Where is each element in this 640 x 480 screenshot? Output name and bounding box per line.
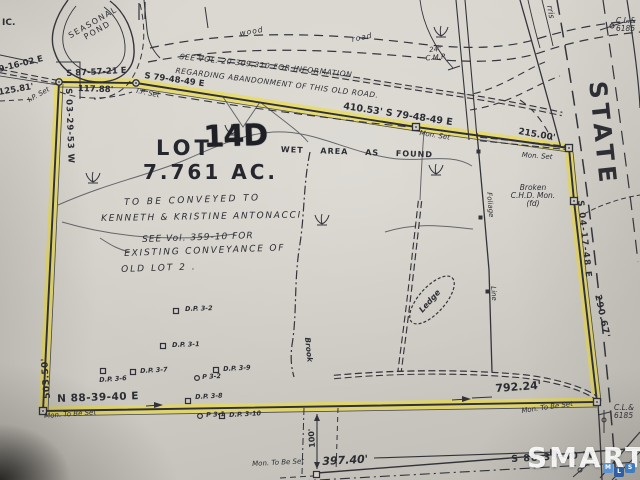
marker-dp37: D.P. 3-7 [140,367,168,375]
utility-label-top: C.L.& 6185 [616,17,636,33]
utility-bottom-line2: 6185 [614,412,634,420]
lot-number: 14D [203,120,268,155]
street-name-partial: rris [545,5,556,19]
lot-area: 7.761 AC. [143,162,278,184]
marker-dp31: D.P. 3-1 [172,341,200,349]
broken-mon-label: Broken C.H.D. Mon. (fd) [505,184,561,208]
mls-tile-m: M [603,463,613,473]
foliage-label: Foliage [484,192,494,218]
offset-dist: 100' [308,428,318,448]
foliage-line-label: Line [488,286,497,301]
brook-label: Brook [303,337,314,362]
marker-dp38: D.P. 3-8 [195,393,223,401]
bearing-west: S 03-29-53 W [63,88,75,164]
stone-walls [0,71,595,397]
marker-p31: P 3-1 [206,411,225,419]
utility-top-line2: 6185 [616,25,636,33]
boundary-highlight [43,82,597,411]
cmp-label: 24" C.M.P. [421,45,450,63]
broken-line3: (fd) [505,200,561,208]
marker-p32: P 3-2 [202,373,221,381]
dist-n1: 117.88' [78,85,114,95]
survey-map-photo: IC. SEASONAL POND 9-16-02 E 125.81' S 87… [0,0,640,480]
ic-label: IC. [2,19,15,29]
utility-label-bottom: C.L.& 6185 [614,404,634,420]
marker-dp39: D.P. 3-9 [223,365,251,373]
mls-tile-l: L [614,467,624,477]
dist-road: 397.40' [322,454,368,468]
marker-dp32: D.P. 3-2 [185,305,213,313]
foliage-line [477,133,492,372]
mls-tile-s: S [625,463,635,473]
